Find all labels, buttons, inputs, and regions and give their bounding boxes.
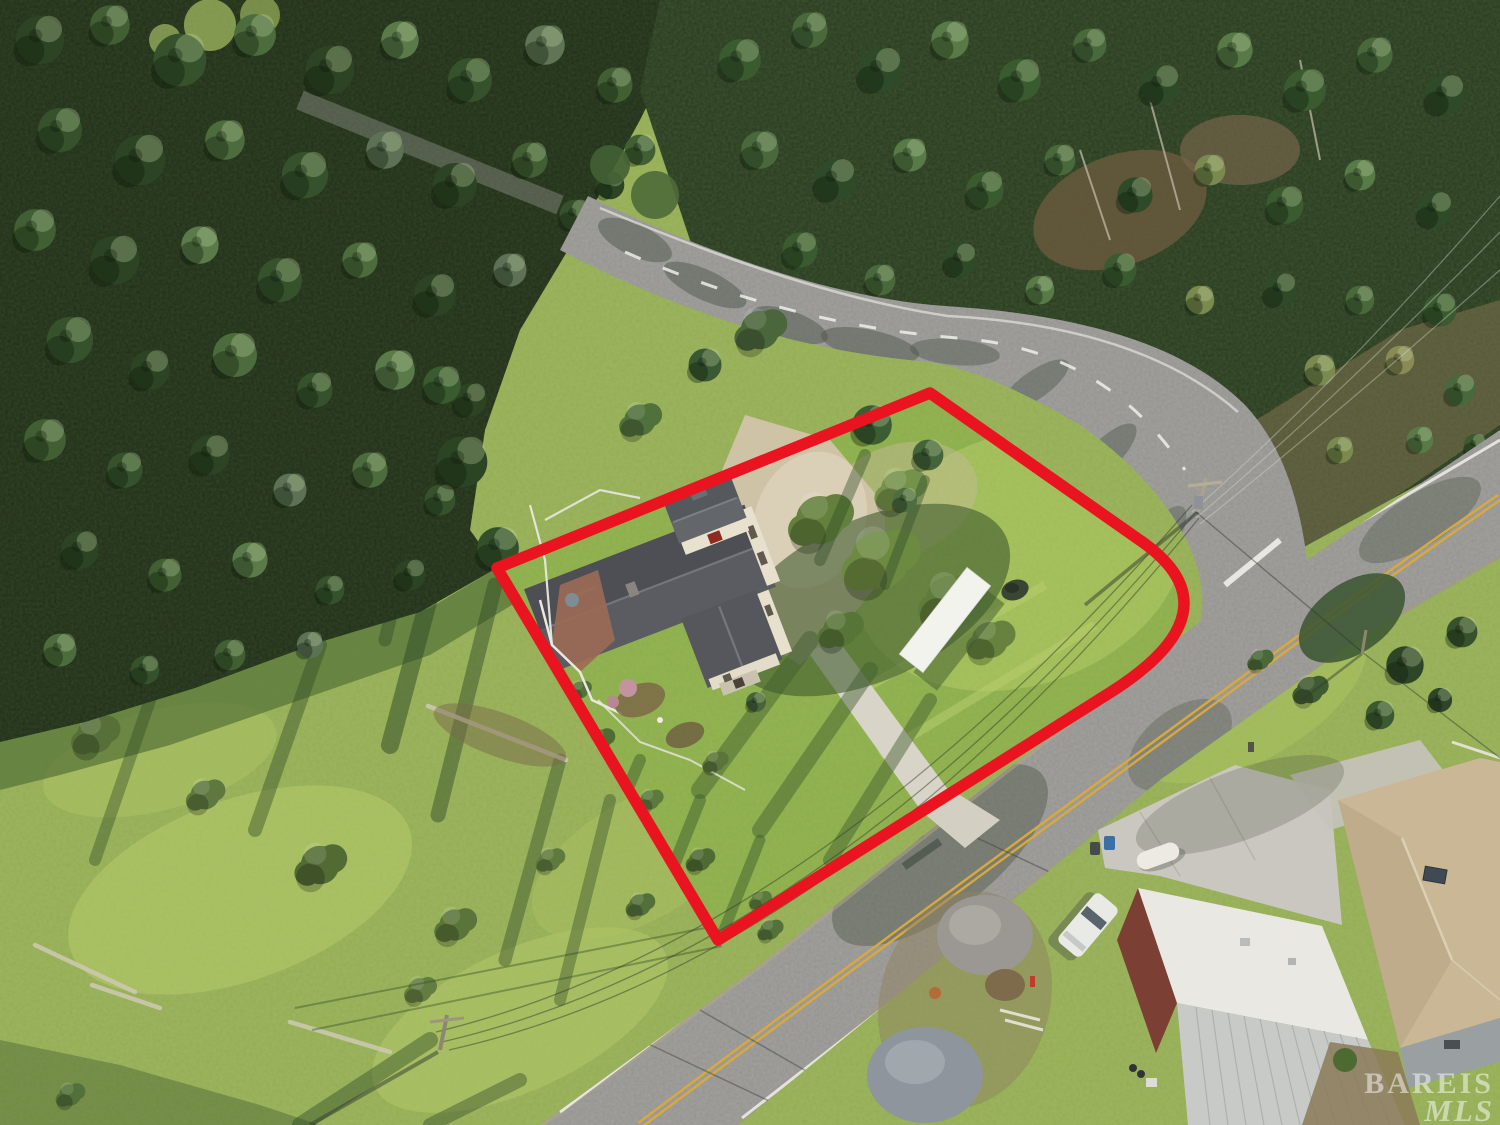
bicycle bbox=[1129, 1064, 1137, 1072]
aerial-photo-stage: BAREIS MLS bbox=[0, 0, 1500, 1125]
overhanging-canopy bbox=[631, 171, 679, 219]
overhanging-canopy bbox=[590, 145, 630, 185]
blossom-tree bbox=[619, 679, 637, 697]
watermark-line2: MLS bbox=[1423, 1093, 1494, 1125]
hot-tub bbox=[565, 593, 579, 607]
bush bbox=[1333, 1048, 1357, 1072]
blossom-tree bbox=[607, 696, 619, 708]
mailbox bbox=[1248, 742, 1254, 752]
gravel-pile-highlight bbox=[949, 905, 1001, 945]
window bbox=[1444, 1040, 1460, 1049]
ac-unit bbox=[1146, 1078, 1157, 1087]
trash-bin-dark bbox=[1090, 842, 1100, 855]
bicycle bbox=[1137, 1070, 1145, 1078]
bird-bath bbox=[657, 717, 663, 723]
roof-vent bbox=[1240, 938, 1250, 946]
transformer bbox=[1194, 496, 1203, 509]
pond-spot-center bbox=[1005, 583, 1019, 593]
aerial-photo: BAREIS MLS bbox=[0, 0, 1500, 1125]
trash-bin-blue bbox=[1104, 836, 1115, 850]
roof-vent bbox=[1288, 958, 1296, 965]
red-marker-post bbox=[1030, 976, 1035, 987]
orange-object bbox=[929, 987, 941, 999]
gravel-pile-highlight bbox=[885, 1040, 945, 1084]
dirt-pile bbox=[985, 969, 1025, 1001]
